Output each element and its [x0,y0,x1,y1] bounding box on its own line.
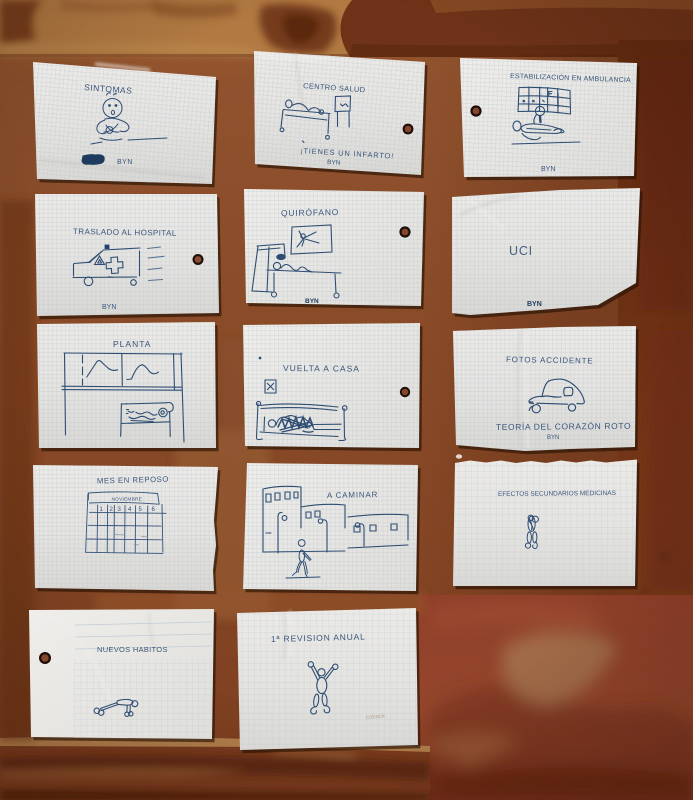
svg-text:TEORÍA DEL CORAZÓN ROTO: TEORÍA DEL CORAZÓN ROTO [496,421,631,432]
svg-text:BYN: BYN [117,159,133,166]
svg-text:VUELTA A CASA: VUELTA A CASA [283,363,360,374]
svg-text:BYN: BYN [305,298,319,305]
svg-text:BYN: BYN [527,301,542,308]
svg-text:TRASLADO AL HOSPITAL: TRASLADO AL HOSPITAL [73,227,177,238]
svg-text:NOVIEMBRE: NOVIEMBRE [112,497,143,503]
svg-text:BYN: BYN [102,304,116,311]
svg-text:BYN: BYN [327,159,341,167]
svg-text:UCI: UCI [509,244,533,258]
svg-text:PLANTA: PLANTA [113,339,151,349]
svg-text:BYN: BYN [547,435,559,441]
svg-text:FOTOS ACCIDENTE: FOTOS ACCIDENTE [506,355,594,366]
svg-text:BYN: BYN [541,166,555,173]
svg-text:MES EN REPOSO: MES EN REPOSO [97,475,169,486]
svg-text:EFECTOS SECUNDARIOS MEDICINAS: EFECTOS SECUNDARIOS MEDICINAS [498,490,617,498]
svg-text:QUIRÓFANO: QUIRÓFANO [281,207,339,218]
svg-text:A CAMINAR: A CAMINAR [327,490,378,500]
svg-text:NUEVOS HABITOS: NUEVOS HABITOS [97,645,168,654]
